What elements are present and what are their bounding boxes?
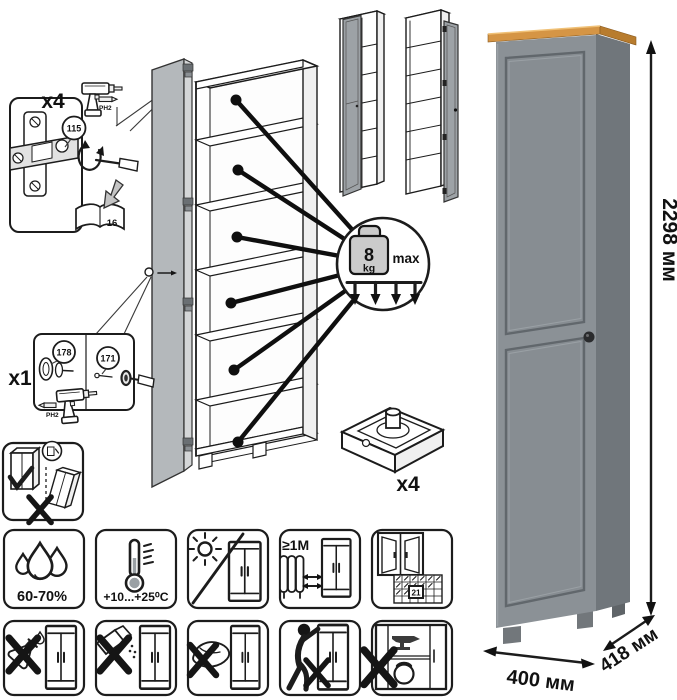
handle-count-label: x1: [8, 367, 32, 390]
calendar-day-label: 21: [411, 589, 421, 598]
foot-part-diagram: x4: [342, 408, 443, 496]
carcass-foot: [253, 442, 266, 458]
height-dimension-label: 2298 мм: [658, 198, 677, 282]
door-knob: [584, 332, 595, 343]
wardrobe-icon: [46, 626, 76, 689]
care-icon-no-dragging: [280, 621, 360, 695]
kettlebell-icon: [395, 663, 414, 684]
manual-page-number: 16: [107, 218, 118, 229]
carcass-foot: [199, 453, 212, 469]
exploded-cabinet-diagram: [145, 59, 317, 487]
care-icon-no-direct-sunlight: [188, 530, 268, 608]
hinge-count-label: x4: [41, 90, 65, 113]
width-dimension-label: 400 мм: [505, 666, 576, 696]
door-left-variant-diagram: [340, 11, 384, 196]
door-lower-panel: [506, 338, 584, 606]
care-icon-no-heavy-load: [364, 621, 452, 695]
door-right-variant-diagram: [406, 10, 458, 202]
calendar-icon: 21: [394, 575, 442, 603]
instruction-canvas: x4 115: [0, 0, 677, 700]
knob-position-marker: [145, 268, 153, 276]
height-dimension: 2298 мм: [646, 40, 677, 616]
care-icon-radiator-distance: ≥1М: [280, 530, 360, 608]
ph2-bit-icon: [39, 403, 56, 408]
feet-count-label: x4: [396, 473, 420, 496]
load-max-label: max: [392, 251, 420, 266]
radi­ator-icon: [280, 556, 304, 598]
wardrobe-icon: [229, 542, 261, 601]
ph2-bit-icon: [99, 97, 117, 102]
assembly-instruction-sheet: x4 115: [0, 0, 677, 700]
temperature-label: +10...+25⁰C: [103, 590, 168, 604]
hinge-part-number: 115: [67, 124, 82, 134]
care-icon-no-abrasive-powder: [96, 621, 176, 695]
product-render: 2298 мм 400 мм 418 мм: [483, 26, 677, 696]
load-unit: kg: [363, 263, 375, 275]
page-arrow-icon: [104, 180, 123, 208]
care-icon-acclimatization: 21: [372, 530, 452, 608]
wardrobe-icon: [322, 539, 351, 597]
cabinet-foot: [503, 626, 521, 644]
door-edge: [184, 59, 192, 471]
handle-part-b-number: 171: [100, 354, 115, 364]
wardrobe-icon: [231, 626, 260, 689]
depth-dimension: 418 мм: [596, 615, 662, 677]
handle-bit-label: PH2: [46, 412, 59, 419]
cabinet-side-face: [596, 34, 630, 611]
window-icon: [378, 533, 423, 575]
screwdriver-icon: [96, 159, 138, 172]
distance-label: ≥1М: [282, 537, 309, 553]
handle-part-a-number: 178: [56, 348, 71, 358]
care-icon-humidity: 60-70%: [4, 530, 84, 608]
upright-transport-warning-icon: [3, 442, 83, 523]
care-icon-temperature: +10...+25⁰C: [96, 530, 176, 608]
width-dimension: 400 мм: [483, 647, 595, 697]
care-icon-no-solvents: [4, 621, 84, 695]
care-icon-no-scouring: [188, 621, 268, 695]
door-upper-panel: [506, 52, 584, 334]
hinge-bit-label: PH2: [99, 105, 112, 112]
handle-step-panel: x1 178 171 PH2: [8, 277, 154, 424]
wardrobe-icon: [140, 626, 170, 689]
humidity-label: 60-70%: [17, 589, 67, 605]
